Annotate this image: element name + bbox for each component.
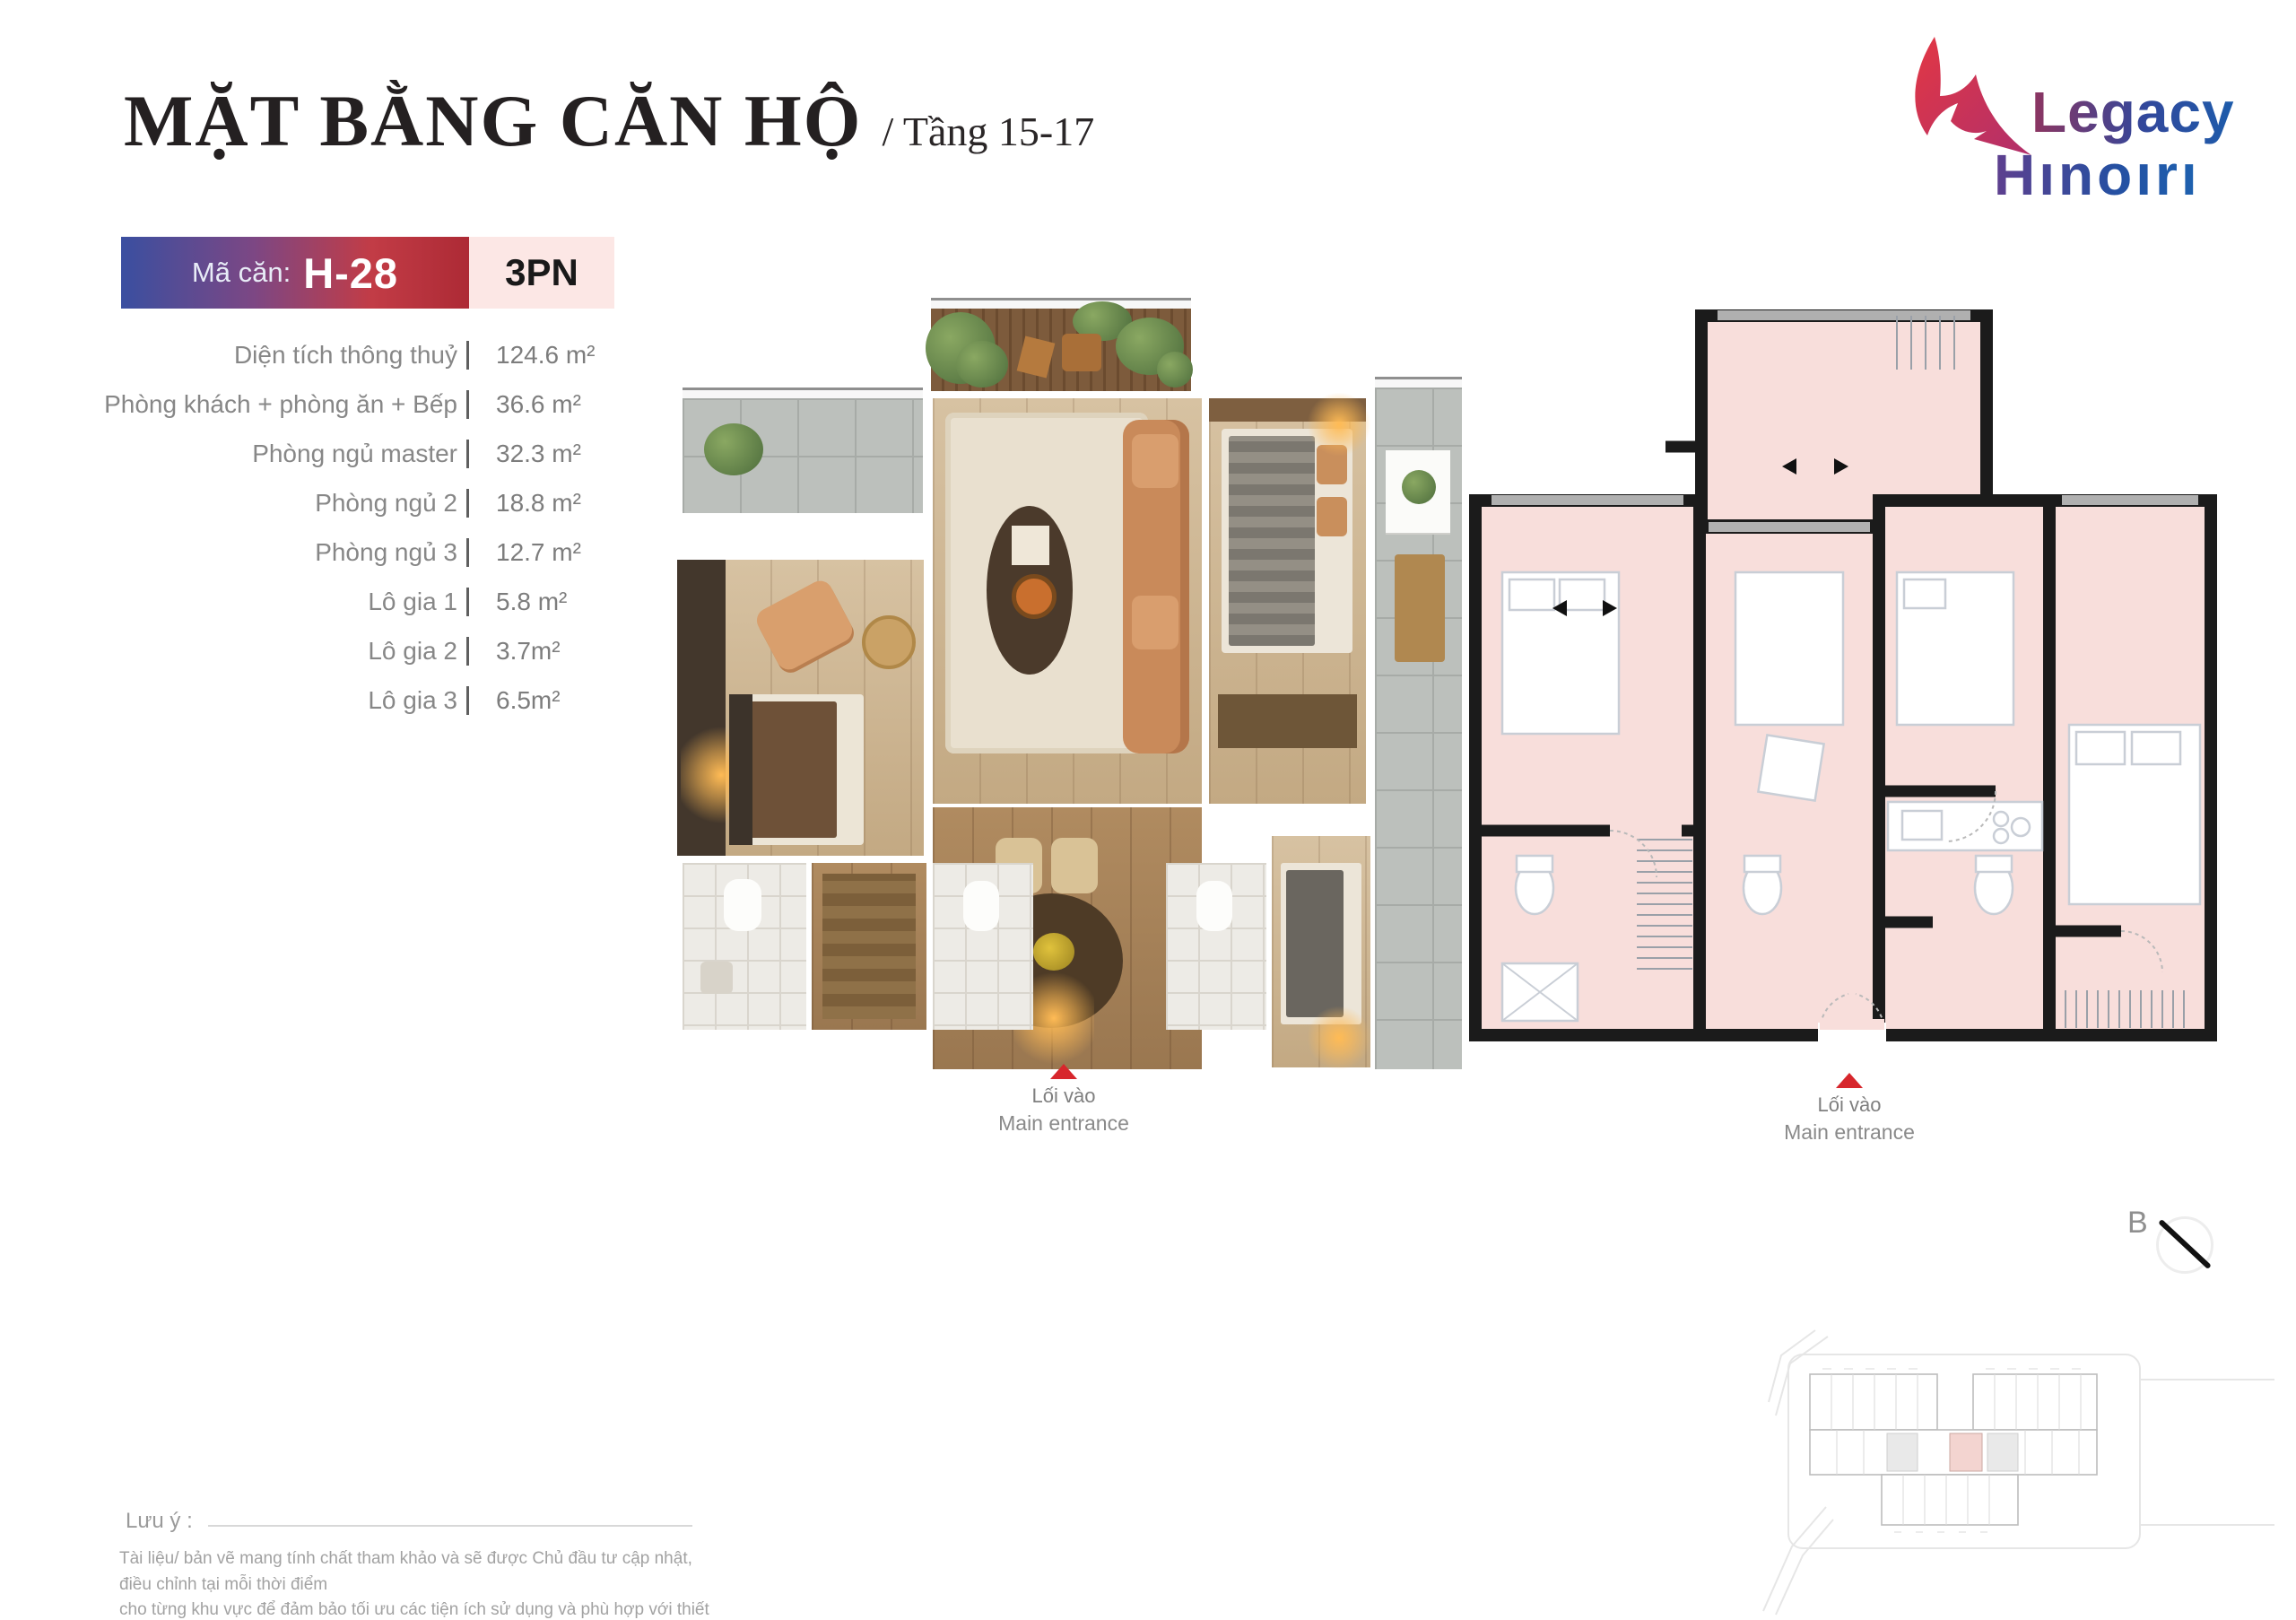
floor-plan-2d bbox=[1466, 303, 2220, 1048]
bedroom-count-value: 3PN bbox=[505, 251, 578, 294]
unit-badge: Mã căn: H-28 3PN bbox=[121, 237, 614, 309]
spec-row-living-kitchen: Phòng khách + phòng ăn + Bếp 36.6 m² bbox=[0, 379, 628, 429]
spec-row-loggia-3: Lô gia 3 6.5m² bbox=[0, 675, 628, 725]
entrance-label-en: Main entrance bbox=[1742, 1120, 1957, 1145]
bedroom-count-chip: 3PN bbox=[469, 237, 614, 309]
unit-code-badge: Mã căn: H-28 bbox=[121, 237, 469, 309]
spec-list: Diện tích thông thuỷ 124.6 m² Phòng khác… bbox=[0, 330, 628, 725]
site-unit-highlight bbox=[1950, 1433, 1982, 1471]
site-unit-gray-right bbox=[1987, 1433, 2018, 1471]
spec-separator bbox=[466, 686, 469, 715]
page-subtitle: / Tầng 15-17 bbox=[882, 108, 1094, 155]
note-label: Lưu ý : bbox=[126, 1509, 193, 1534]
bedroom3-render bbox=[1272, 836, 1370, 1067]
unit-code-label: Mã căn: bbox=[192, 257, 291, 289]
entrance-marker-2d: Lối vào Main entrance bbox=[1742, 1073, 1957, 1145]
spec-value: 36.6 m² bbox=[496, 390, 581, 419]
spec-value: 12.7 m² bbox=[496, 538, 581, 567]
living-room-render bbox=[933, 398, 1202, 804]
spec-row-loggia-2: Lô gia 2 3.7m² bbox=[0, 626, 628, 675]
spec-label: Diện tích thông thuỷ bbox=[0, 341, 466, 370]
unit-code-value: H-28 bbox=[303, 248, 398, 298]
entrance-label-en: Main entrance bbox=[956, 1111, 1171, 1136]
spec-row-loggia-1: Lô gia 1 5.8 m² bbox=[0, 577, 628, 626]
spec-separator bbox=[466, 588, 469, 616]
spec-label: Phòng ngủ 2 bbox=[0, 489, 466, 518]
spec-label: Lô gia 3 bbox=[0, 686, 466, 715]
spec-label: Phòng ngủ master bbox=[0, 440, 466, 468]
spec-separator bbox=[466, 341, 469, 370]
spec-separator bbox=[466, 390, 469, 419]
brand-logo: Legacy Hınoırı bbox=[1888, 27, 2292, 233]
compass-north-label: B bbox=[2127, 1206, 2148, 1241]
spec-value: 124.6 m² bbox=[496, 341, 596, 370]
entrance-label-vi: Lối vào bbox=[956, 1084, 1171, 1108]
spec-value: 32.3 m² bbox=[496, 440, 581, 468]
note-text-line1: Tài liệu/ bản vẽ mang tính chất tham khả… bbox=[119, 1546, 729, 1598]
loggia-deck-top bbox=[931, 309, 1191, 391]
spec-row-master-bedroom: Phòng ngủ master 32.3 m² bbox=[0, 429, 628, 478]
spec-label: Lô gia 1 bbox=[0, 588, 466, 616]
note-underline bbox=[208, 1525, 692, 1527]
site-unit-gray-left bbox=[1887, 1433, 1918, 1471]
spec-label: Phòng khách + phòng ăn + Bếp bbox=[0, 390, 466, 419]
floor-plan-3d bbox=[677, 298, 1462, 1069]
loggia-tiles-left bbox=[683, 398, 923, 513]
page-header: MẶT BẰNG CĂN HỘ / Tầng 15-17 bbox=[124, 79, 1094, 163]
site-wing-left bbox=[1810, 1374, 1937, 1430]
spec-value: 5.8 m² bbox=[496, 588, 567, 616]
site-map bbox=[1751, 1290, 2296, 1620]
brand-name-line2: Hınoırı bbox=[1994, 142, 2201, 208]
spec-separator bbox=[466, 538, 469, 567]
bathroom1-render bbox=[683, 863, 806, 1030]
entrance-arrow-icon bbox=[1050, 1064, 1077, 1079]
brochure-page: MẶT BẰNG CĂN HỘ / Tầng 15-17 Legacy Hıno… bbox=[0, 0, 2296, 1620]
bathroom3-render bbox=[1166, 863, 1266, 1030]
spec-value: 18.8 m² bbox=[496, 489, 581, 518]
bathroom2-render bbox=[933, 863, 1033, 1030]
plan2d-loggia-top bbox=[1701, 316, 1987, 526]
wardrobe-render bbox=[812, 863, 926, 1030]
spec-value: 3.7m² bbox=[496, 637, 561, 666]
note-text-line2: cho từng khu vực để đảm bảo tối ưu các t… bbox=[119, 1598, 729, 1620]
spec-value: 6.5m² bbox=[496, 686, 561, 715]
site-wing-bottom bbox=[1882, 1475, 2018, 1525]
spec-row-bedroom-2: Phòng ngủ 2 18.8 m² bbox=[0, 478, 628, 527]
brand-name-line1: Legacy bbox=[2031, 79, 2235, 145]
spec-separator bbox=[466, 440, 469, 468]
spec-label: Phòng ngủ 3 bbox=[0, 538, 466, 567]
entrance-label-vi: Lối vào bbox=[1742, 1093, 1957, 1117]
spec-label: Lô gia 2 bbox=[0, 637, 466, 666]
spec-row-area-total: Diện tích thông thuỷ 124.6 m² bbox=[0, 330, 628, 379]
site-wing-right bbox=[1973, 1374, 2097, 1430]
note-body: Tài liệu/ bản vẽ mang tính chất tham khả… bbox=[119, 1546, 729, 1620]
spec-separator bbox=[466, 489, 469, 518]
entrance-arrow-icon bbox=[1836, 1073, 1863, 1088]
page-title: MẶT BẰNG CĂN HỘ bbox=[124, 79, 862, 163]
bedroom2-render bbox=[1209, 398, 1366, 804]
master-bedroom-render bbox=[677, 560, 924, 856]
spec-separator bbox=[466, 637, 469, 666]
loggia-tiles-right bbox=[1375, 388, 1462, 1069]
entrance-marker-3d: Lối vào Main entrance bbox=[956, 1064, 1171, 1136]
spec-row-bedroom-3: Phòng ngủ 3 12.7 m² bbox=[0, 527, 628, 577]
